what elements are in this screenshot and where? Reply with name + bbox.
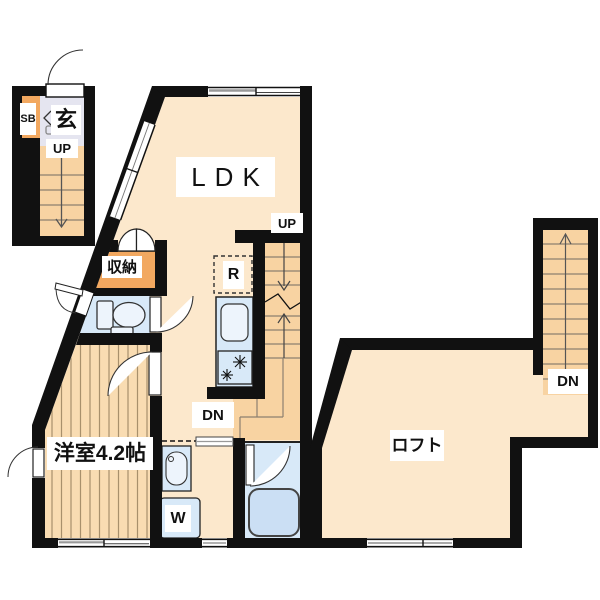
western-room-exterior-door: [8, 447, 45, 478]
window-western-room: [58, 538, 150, 548]
label-loft: ロフト: [390, 430, 444, 461]
kitchen-sink: [221, 304, 248, 341]
toilet-window-leaf: [55, 283, 83, 296]
floorplan: 玄 SB UP LDK UP 収納 R DN 洋室4.2帖 W ロフト DN: [0, 0, 600, 600]
label-western-room: 洋室4.2帖: [47, 437, 153, 470]
label-shoe-box: SB: [20, 103, 36, 135]
label-entrance: 玄: [51, 105, 81, 135]
label-up-main: UP: [271, 213, 303, 233]
label-dn-loft: DN: [548, 369, 588, 394]
label-washer: W: [165, 505, 191, 532]
entrance-door: [46, 50, 84, 97]
label-ldk: LDK: [176, 157, 275, 197]
bathtub-icon: [249, 489, 299, 536]
label-refrigerator: R: [223, 261, 244, 289]
window-loft: [367, 538, 453, 548]
window-washroom: [202, 538, 227, 548]
window-top-ldk: [208, 86, 300, 97]
floorplan-drawing: [0, 0, 600, 600]
label-dn-main: DN: [192, 402, 234, 428]
label-up-entrance: UP: [46, 139, 78, 158]
label-storage: 収納: [102, 256, 142, 278]
entrance-stairs-floor: [40, 146, 85, 236]
